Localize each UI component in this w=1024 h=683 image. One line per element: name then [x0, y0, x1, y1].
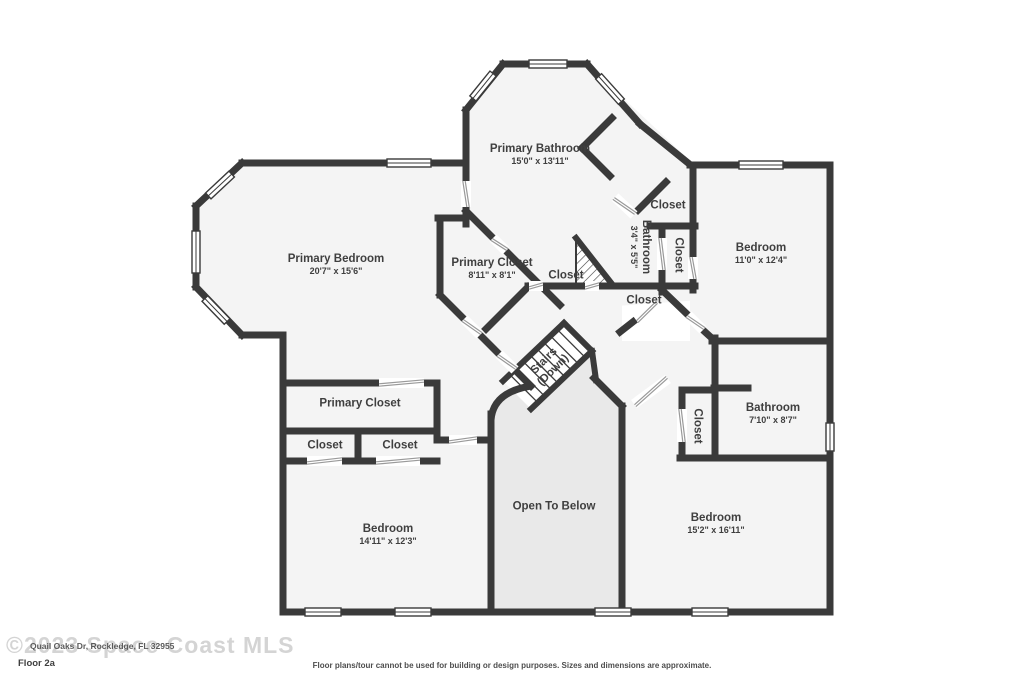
- window-marker: [595, 608, 631, 616]
- window-marker: [305, 608, 341, 616]
- disclaimer-text: Floor plans/tour cannot be used for buil…: [0, 661, 1024, 670]
- floor-plan-canvas: [0, 0, 1024, 683]
- window-marker: [739, 161, 783, 169]
- window-marker: [692, 608, 728, 616]
- window-marker: [395, 608, 431, 616]
- window-marker: [387, 159, 431, 167]
- property-address: Quail Oaks Dr, Rockledge, FL 32955: [30, 641, 174, 651]
- window-marker: [529, 60, 567, 68]
- window-marker: [826, 423, 834, 451]
- floor-plan-page: Primary Bathroom 15'0" x 13'11" Primary …: [0, 0, 1024, 683]
- window-marker: [192, 231, 200, 273]
